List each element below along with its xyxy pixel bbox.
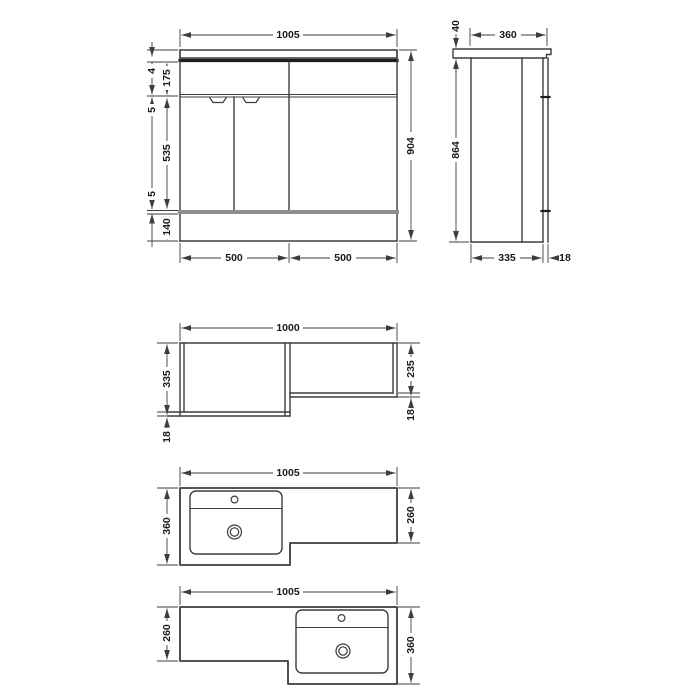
dim-front-overall-height-label: 904 <box>405 137 417 155</box>
dimension-lines <box>147 28 557 684</box>
dim-worktop-depth-label: 360 <box>499 29 517 41</box>
dim-plan-left-depth-label: 335 <box>161 370 173 388</box>
basin-lh <box>190 491 282 554</box>
dim-worktop-gap-label: 4 <box>146 68 158 74</box>
dim-worktop-rh-right-depth-label: 360 <box>405 636 417 654</box>
dim-front-overall-width-label: 1005 <box>276 29 300 41</box>
dim-right-unit-width-label: 500 <box>334 252 352 264</box>
dim-gap-upper-label: 5 <box>146 107 158 113</box>
dim-drawer-front-label: 175 <box>161 69 173 87</box>
door-handle-left-icon <box>210 98 226 103</box>
dim-worktop-rh-left-depth-label: 260 <box>161 624 173 642</box>
dim-plan-right-depth-label: 235 <box>405 360 417 378</box>
plan-extension-lines <box>157 323 420 416</box>
tap-hole-icon-lh <box>231 496 238 503</box>
dim-plan-left-panel-label: 18 <box>161 431 173 443</box>
front-extension-lines <box>147 29 417 263</box>
waste-drain-inner-icon-lh <box>230 528 238 536</box>
waste-drain-outer-icon-lh <box>228 525 242 539</box>
worktop-front-edge <box>180 50 397 58</box>
door-handle-right-icon <box>243 98 259 103</box>
dim-cabinet-height-label: 864 <box>450 141 462 159</box>
dim-worktop-lh-left-depth-label: 360 <box>161 517 173 535</box>
dim-left-unit-width-label: 500 <box>225 252 243 264</box>
worktop-plan-rh-view <box>180 607 397 684</box>
dim-worktop-lh-width-label: 1005 <box>276 467 300 479</box>
dim-gap-lower-label: 5 <box>146 191 158 197</box>
waste-drain-inner-icon-rh <box>339 647 347 655</box>
basin-rh <box>296 610 388 673</box>
technical-drawing: 1005 904 4 175 5 535 5 140 500 500 40 36… <box>0 0 700 700</box>
worktop-profile <box>453 49 551 58</box>
dim-worktop-lh-right-depth-label: 260 <box>405 506 417 524</box>
dim-worktop-rh-width-label: 1005 <box>276 586 300 598</box>
side-extension-lines <box>449 28 548 263</box>
dimension-labels: 1005 904 4 175 5 535 5 140 500 500 40 36… <box>146 20 571 654</box>
technical-drawing-page: 1005 904 4 175 5 535 5 140 500 500 40 36… <box>0 0 700 700</box>
dim-worktop-thickness-label: 40 <box>450 20 462 32</box>
dim-plinth-height-label: 140 <box>161 218 173 236</box>
dim-plan-width-label: 1000 <box>276 322 300 334</box>
dim-door-thickness-label: 18 <box>559 252 571 264</box>
tap-hole-icon-rh <box>338 615 345 622</box>
waste-drain-outer-icon-rh <box>336 644 350 658</box>
worktop-plan-lh-view <box>180 488 397 565</box>
worktop-lh-extension-lines <box>157 467 420 565</box>
side-elevation-view <box>453 49 551 242</box>
dim-plan-right-panel-label: 18 <box>405 409 417 421</box>
front-elevation-view <box>180 50 397 241</box>
carcass-plan-view <box>168 343 397 416</box>
dim-cabinet-depth-label: 335 <box>498 252 516 264</box>
dim-door-height-label: 535 <box>161 144 173 162</box>
